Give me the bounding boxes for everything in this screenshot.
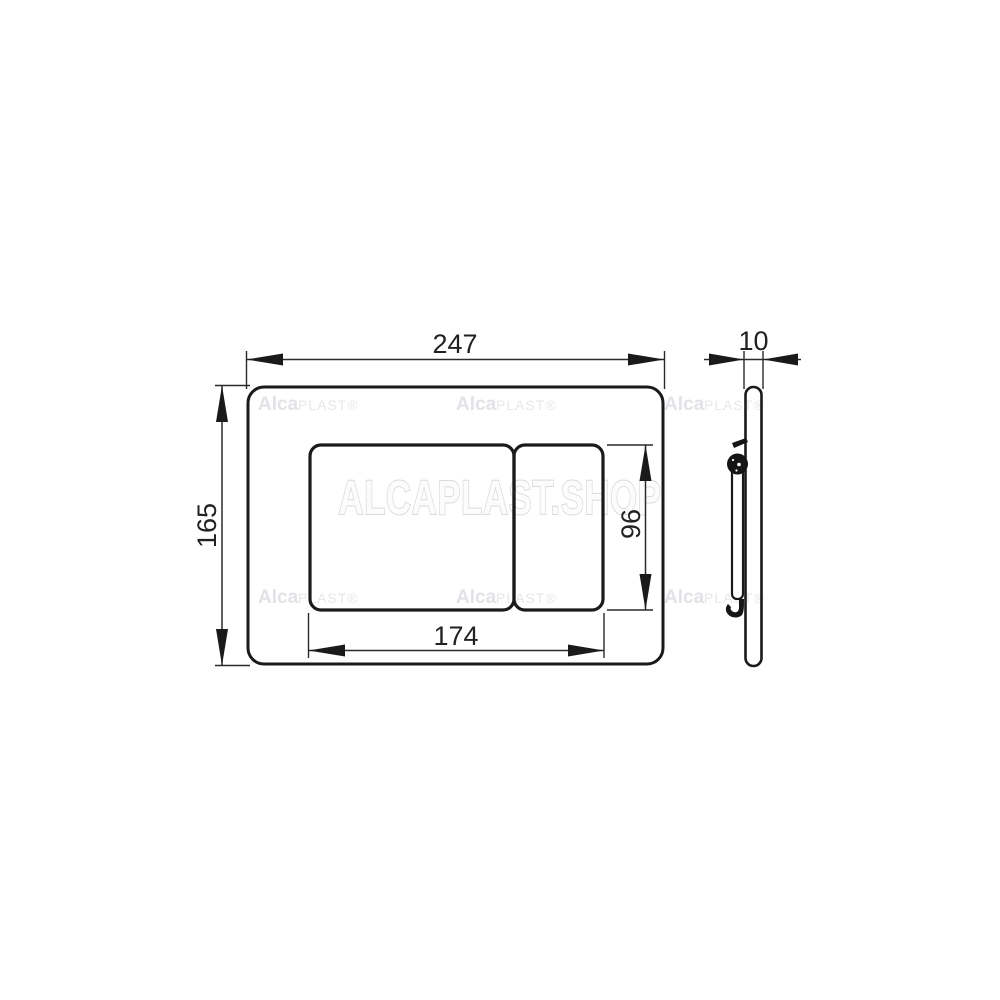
watermark-brand-light: PLAST® [298, 590, 359, 606]
watermark-brand-bold: Alca [258, 587, 299, 608]
side-view [726, 387, 762, 666]
mounting-lever-bar [732, 455, 743, 599]
watermark-brand-light: PLAST® [496, 397, 557, 413]
arrowhead-top [216, 386, 228, 423]
hinge-pivot-center-dot [737, 463, 741, 467]
arrowhead-bottom [640, 574, 652, 610]
watermark-tile: Alca PLAST® [664, 587, 765, 608]
watermark-tile: Alca PLAST® [258, 394, 359, 415]
watermark-brand-bold: Alca [456, 587, 497, 608]
watermark-tile: Alca PLAST® [258, 587, 359, 608]
plate-profile-outline [746, 387, 762, 666]
watermark-brand-light: PLAST® [496, 590, 557, 606]
dim-label-front-width: 247 [432, 329, 477, 359]
watermark-brand-bold: Alca [664, 394, 705, 415]
watermark-shop: ALCAPLAST.SHOP [339, 470, 662, 524]
watermark-brand-bold: Alca [664, 587, 705, 608]
watermark-tile: Alca PLAST® [456, 394, 557, 415]
arrowhead-right [568, 645, 604, 657]
hinge-pivot-dot [735, 469, 737, 471]
dim-label-buttons-width: 174 [433, 621, 478, 651]
dim-label-front-height: 165 [192, 503, 222, 548]
hinge-pivot-dot [732, 459, 734, 461]
watermark-tile: Alca PLAST® [456, 587, 557, 608]
dimension-front-height: 165 [192, 386, 250, 666]
watermark-layer: ALCAPLAST.SHOP Alca PLAST® Alca PLAST® A… [258, 394, 765, 608]
technical-drawing-canvas: ALCAPLAST.SHOP Alca PLAST® Alca PLAST® A… [0, 0, 1000, 1000]
arrowhead-bottom [216, 629, 228, 666]
arrowhead-left [247, 354, 284, 366]
dimension-buttons-width: 174 [309, 613, 605, 658]
dim-label-side-thickness: 10 [738, 326, 768, 356]
arrowhead-top [640, 445, 652, 481]
dimension-side-thickness: 10 [704, 326, 801, 389]
watermark-brand-bold: Alca [456, 394, 497, 415]
watermark-brand-light: PLAST® [704, 397, 765, 413]
watermark-brand-bold: Alca [258, 394, 299, 415]
watermark-brand-light: PLAST® [298, 397, 359, 413]
drawing-page: ALCAPLAST.SHOP Alca PLAST® Alca PLAST® A… [0, 0, 1000, 1000]
arrowhead-right [628, 354, 665, 366]
dimension-front-width: 247 [247, 329, 665, 389]
arrowhead-left [309, 645, 346, 657]
watermark-tile: Alca PLAST® [664, 394, 765, 415]
dim-label-buttons-height: 96 [616, 509, 646, 539]
